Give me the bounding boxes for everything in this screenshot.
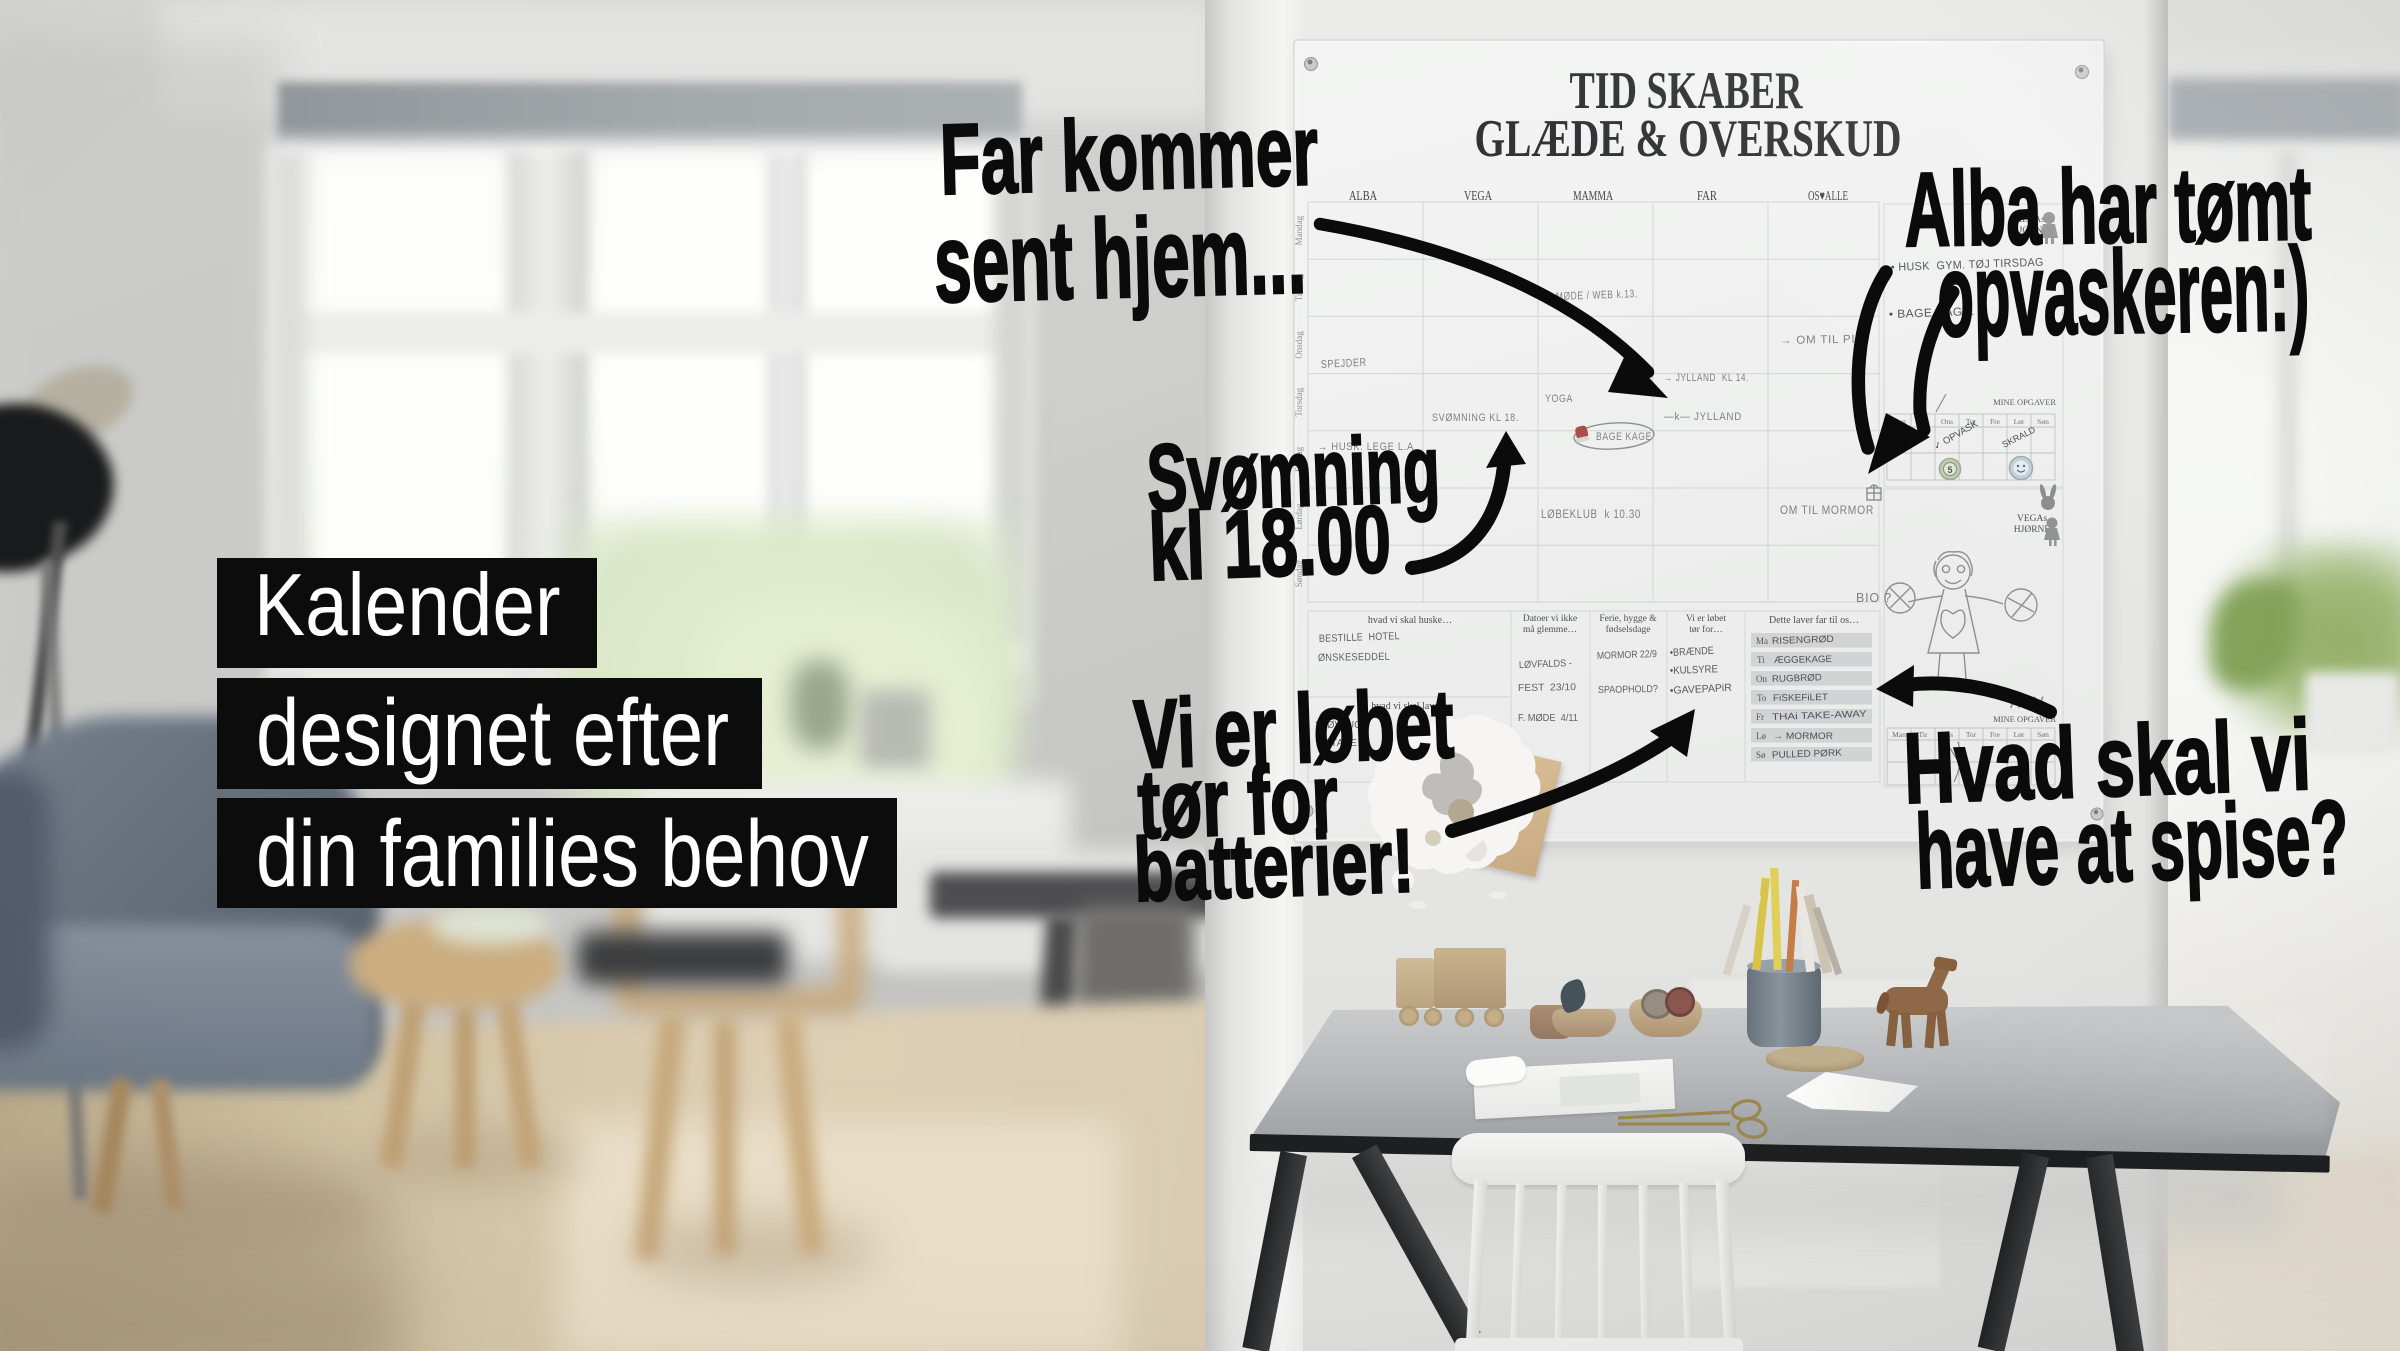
svg-text:sent hjem...: sent hjem... (932, 191, 1307, 326)
svg-text:batterier!: batterier! (1132, 811, 1415, 921)
svg-text:have at spise?: have at spise? (1914, 779, 2351, 911)
svg-text:kl 18.00: kl 18.00 (1147, 487, 1393, 601)
svg-text:opvaskeren:): opvaskeren:) (1936, 224, 2310, 362)
